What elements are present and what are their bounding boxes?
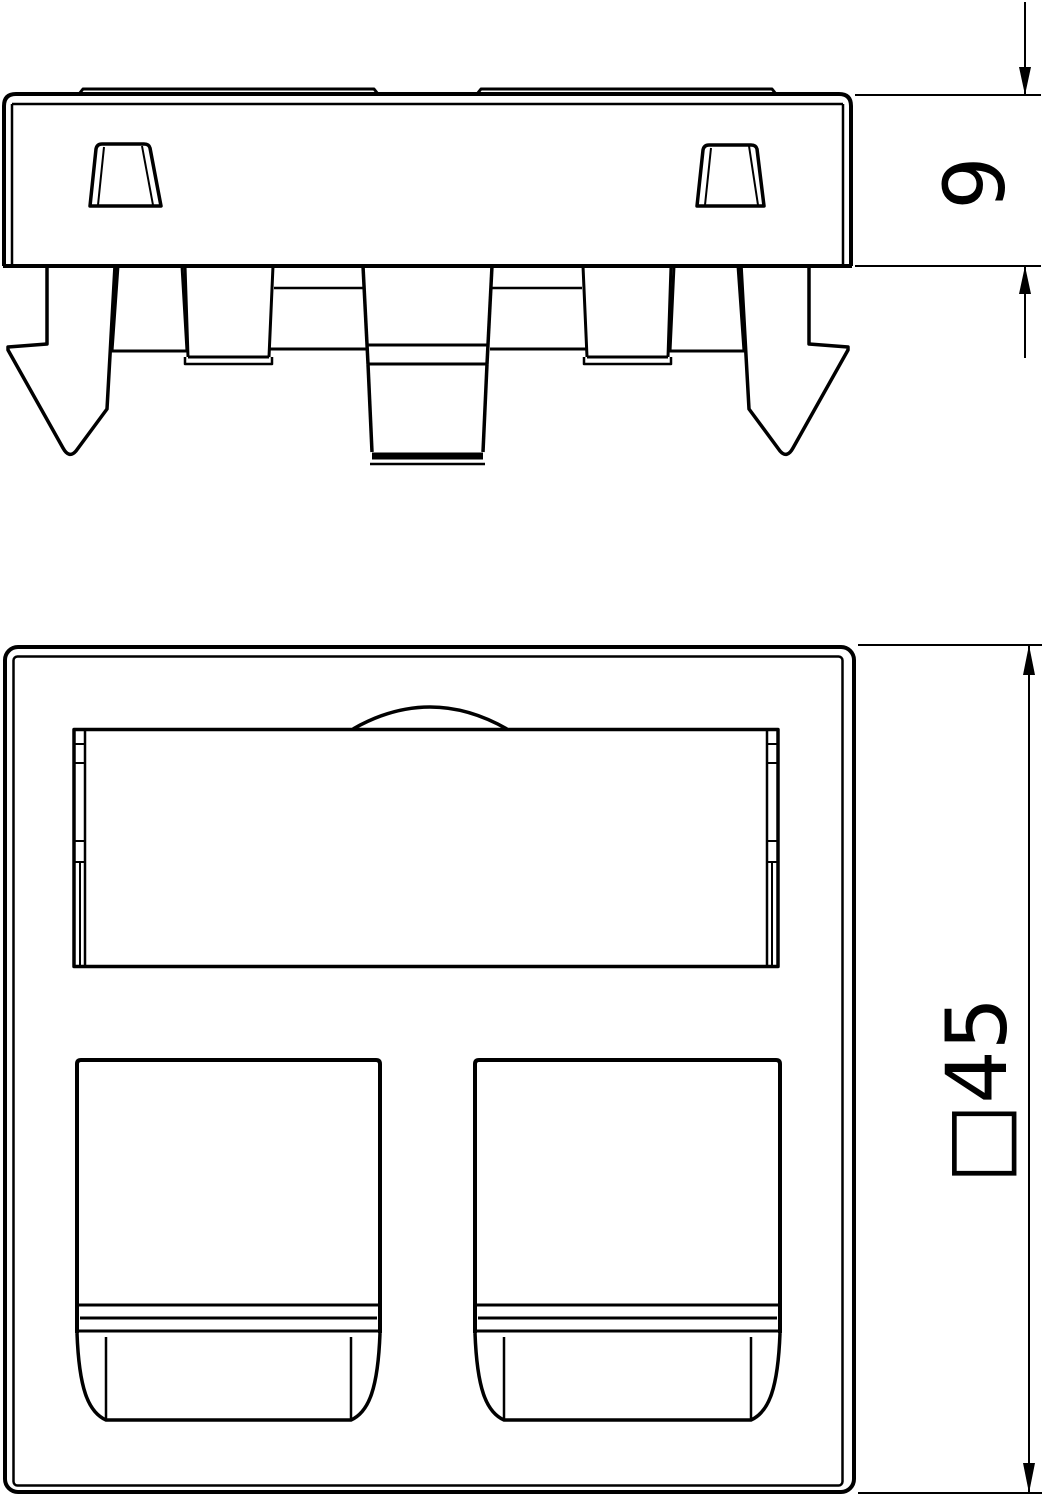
- arrow-up-icon: [1023, 645, 1035, 675]
- label-field: [74, 730, 778, 967]
- jack-right-flap: [475, 1333, 780, 1420]
- right-deep-leg: [583, 266, 671, 357]
- plate-inner-edge: [14, 657, 843, 1486]
- label-thumb-notch-arc: [353, 707, 507, 729]
- latch-bump-right-inner-line-a: [705, 148, 711, 205]
- square-dimension: □45: [858, 645, 1042, 1493]
- latch-bump-left-inner-line-a: [98, 147, 104, 205]
- side-view: [3, 89, 852, 464]
- right-shallow-leg: [670, 266, 744, 351]
- technical-drawing-canvas: 9: [0, 0, 1047, 1500]
- arrow-down-icon: [1019, 67, 1031, 95]
- left-deep-leg: [185, 266, 273, 357]
- body-outline: [4, 94, 851, 266]
- plate-outer-edge: [5, 647, 854, 1492]
- arrow-down-icon: [1023, 1463, 1035, 1493]
- center-latch-lower-right: [483, 364, 487, 452]
- left-barb-claw: [8, 266, 115, 454]
- front-view: [5, 647, 854, 1492]
- left-shallow-leg: [112, 266, 187, 351]
- jack-opening-left: [77, 1060, 380, 1420]
- arrow-up-icon: [1019, 266, 1031, 294]
- jack-left-flap: [77, 1333, 380, 1420]
- technical-drawing-page: 9: [0, 0, 1047, 1500]
- height-dimension: 9: [855, 2, 1041, 358]
- right-barb-claw: [741, 266, 848, 454]
- jack-opening-right: [475, 1060, 780, 1420]
- jack-left-outline: [77, 1060, 380, 1333]
- jack-right-outline: [475, 1060, 780, 1333]
- square-dimension-label: □45: [928, 997, 1026, 1183]
- center-latch-lower-left: [368, 364, 372, 452]
- height-dimension-label: 9: [926, 156, 1024, 209]
